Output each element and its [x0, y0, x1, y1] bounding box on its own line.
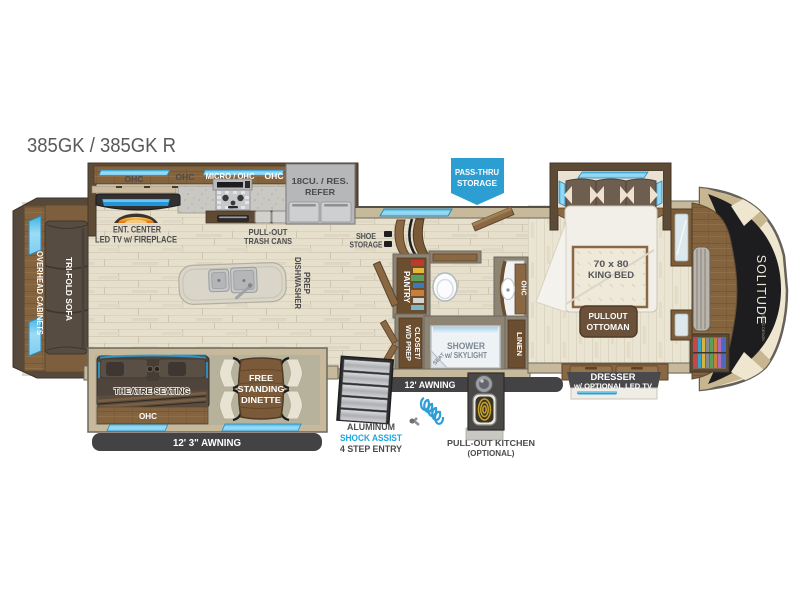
- svg-text:PANTRY: PANTRY: [402, 271, 411, 304]
- svg-text:LINEN: LINEN: [515, 332, 524, 356]
- svg-text:PASS-THRU: PASS-THRU: [455, 167, 499, 177]
- svg-text:PULL-OUT KITCHEN: PULL-OUT KITCHEN: [447, 438, 535, 448]
- svg-text:(OPTIONAL): (OPTIONAL): [468, 449, 515, 458]
- svg-text:OHC: OHC: [125, 174, 144, 184]
- svg-text:REFER: REFER: [305, 187, 335, 197]
- svg-text:CLOSET/: CLOSET/: [413, 327, 422, 359]
- svg-text:PREP: PREP: [302, 272, 312, 294]
- svg-text:W/D PREP: W/D PREP: [404, 325, 413, 361]
- svg-text:FREE: FREE: [249, 373, 273, 383]
- svg-text:DINETTE: DINETTE: [241, 395, 281, 405]
- svg-text:TRASH CANS: TRASH CANS: [244, 236, 292, 246]
- svg-text:STORAGE: STORAGE: [457, 178, 497, 188]
- svg-text:18CU. / RES.: 18CU. / RES.: [292, 176, 349, 186]
- svg-text:ENT. CENTER: ENT. CENTER: [113, 225, 161, 235]
- svg-text:GRAND DESIGN: GRAND DESIGN: [761, 313, 765, 341]
- svg-text:STORAGE: STORAGE: [350, 241, 383, 250]
- svg-text:w/ SKYLIGHT: w/ SKYLIGHT: [444, 351, 487, 360]
- svg-text:LED TV w/ FIREPLACE: LED TV w/ FIREPLACE: [95, 235, 177, 245]
- svg-text:70 x 80: 70 x 80: [594, 259, 629, 270]
- svg-text:SHOWER: SHOWER: [447, 341, 485, 351]
- svg-text:4 STEP ENTRY: 4 STEP ENTRY: [340, 444, 402, 454]
- svg-text:ALUMINUM: ALUMINUM: [347, 422, 395, 432]
- svg-text:DRESSER: DRESSER: [591, 372, 637, 382]
- svg-text:KING BED: KING BED: [588, 270, 634, 281]
- svg-text:OTTOMAN: OTTOMAN: [587, 322, 630, 332]
- svg-text:12' AWNING: 12' AWNING: [405, 380, 456, 390]
- svg-text:DISHWASHER: DISHWASHER: [293, 257, 303, 309]
- svg-text:OHC: OHC: [139, 412, 157, 421]
- svg-text:385GK / 385GK R: 385GK / 385GK R: [27, 135, 176, 157]
- svg-text:w/ OPTIONAL LED TV: w/ OPTIONAL LED TV: [573, 384, 652, 391]
- svg-text:TRI-FOLD SOFA: TRI-FOLD SOFA: [64, 257, 74, 321]
- svg-text:OVERHEAD CABINETS: OVERHEAD CABINETS: [35, 251, 44, 335]
- svg-text:12' 3" AWNING: 12' 3" AWNING: [173, 437, 241, 449]
- svg-text:OHC: OHC: [176, 172, 195, 182]
- svg-text:THEATRE SEATING: THEATRE SEATING: [114, 386, 190, 396]
- svg-text:PULLOUT: PULLOUT: [589, 311, 629, 321]
- svg-text:OHC: OHC: [265, 171, 284, 181]
- svg-text:STANDING: STANDING: [238, 384, 285, 394]
- svg-text:SHOCK ASSIST: SHOCK ASSIST: [340, 433, 403, 443]
- svg-text:OHC: OHC: [520, 281, 529, 297]
